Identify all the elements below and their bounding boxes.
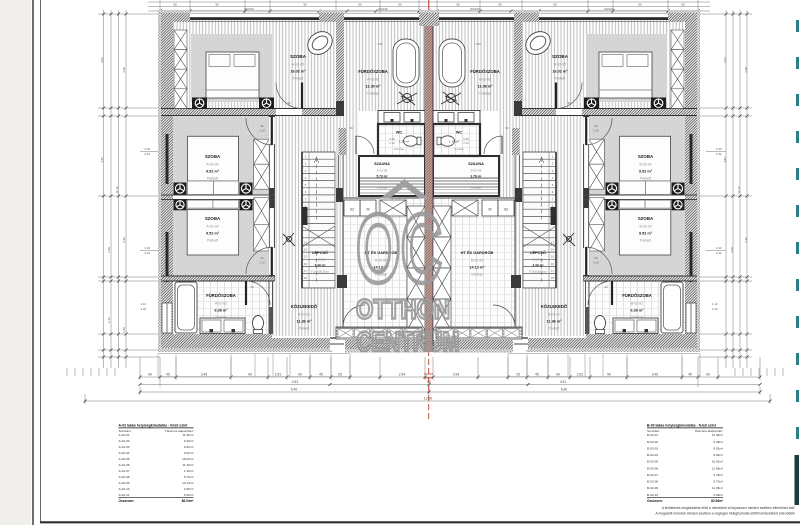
svg-text:1.19 m²: 1.19 m²	[399, 140, 409, 144]
svg-text:B-02-03: B-02-03	[647, 446, 658, 450]
svg-text:SZOBA: SZOBA	[638, 154, 654, 159]
svg-text:11.30 m²: 11.30 m²	[366, 85, 382, 89]
svg-text:11.36m²: 11.36m²	[712, 433, 723, 437]
svg-text:A-02-04: A-02-04	[206, 163, 218, 167]
svg-text:A-02-01: A-02-01	[119, 433, 130, 437]
svg-text:B-02-05: B-02-05	[554, 63, 566, 67]
svg-text:1.19m²: 1.19m²	[184, 469, 194, 473]
svg-text:11.08m²: 11.08m²	[712, 466, 723, 470]
svg-text:90/240: 90/240	[244, 7, 254, 11]
svg-text:90: 90	[505, 126, 509, 130]
svg-text:1.19 m²: 1.19 m²	[449, 140, 459, 144]
svg-text:90/240: 90/240	[604, 7, 614, 11]
svg-text:Greslap: Greslap	[394, 147, 404, 151]
svg-text:90: 90	[604, 285, 608, 289]
svg-text:A-02-01: A-02-01	[298, 313, 310, 317]
svg-text:Parkett: Parkett	[299, 327, 310, 331]
svg-text:B-02-01: B-02-01	[647, 433, 658, 437]
svg-text:90: 90	[298, 373, 302, 377]
svg-text:Parkett: Parkett	[293, 77, 304, 81]
svg-text:Parkett: Parkett	[640, 239, 651, 243]
svg-text:1.56: 1.56	[122, 327, 126, 333]
svg-text:2.40: 2.40	[716, 246, 722, 250]
svg-text:90: 90	[287, 101, 291, 105]
svg-text:A-02-05: A-02-05	[119, 457, 130, 461]
svg-text:B-02-10: B-02-10	[647, 493, 658, 497]
svg-text:3.34 m²: 3.34 m²	[533, 264, 544, 268]
svg-text:WC: WC	[456, 131, 463, 135]
svg-text:Greslap: Greslap	[454, 147, 464, 151]
svg-text:90: 90	[148, 373, 152, 377]
svg-text:A-02-06: A-02-06	[367, 78, 379, 82]
svg-text:Greslap: Greslap	[479, 92, 491, 96]
svg-text:Greslap: Greslap	[631, 316, 643, 320]
svg-text:25: 25	[338, 373, 342, 377]
svg-text:90: 90	[498, 3, 502, 7]
svg-text:3.46: 3.46	[201, 373, 208, 377]
svg-text:45: 45	[688, 373, 692, 377]
svg-text:11.08 m²: 11.08 m²	[478, 85, 494, 89]
svg-text:4.51: 4.51	[292, 380, 299, 384]
svg-text:6.39m²: 6.39m²	[184, 439, 194, 443]
svg-text:Parkett: Parkett	[640, 177, 651, 181]
svg-text:B-02-07: B-02-07	[647, 473, 658, 477]
svg-text:90: 90	[681, 3, 685, 7]
svg-text:Greslap: Greslap	[377, 186, 388, 190]
svg-text:1.62: 1.62	[377, 42, 383, 46]
svg-text:2.10: 2.10	[593, 129, 599, 133]
svg-text:Parkett: Parkett	[207, 239, 218, 243]
svg-text:B-02-06: B-02-06	[647, 466, 658, 470]
svg-text:A-02-11: A-02-11	[119, 493, 130, 497]
svg-text:9.52 m²: 9.52 m²	[206, 232, 220, 236]
svg-text:90/240: 90/240	[470, 7, 480, 11]
svg-text:16.02 m²: 16.02 m²	[290, 70, 306, 74]
svg-text:2.40: 2.40	[141, 307, 147, 311]
svg-text:3.34 m²: 3.34 m²	[315, 264, 326, 268]
svg-text:B-02-06: B-02-06	[479, 78, 491, 82]
svg-text:5.73 m²: 5.73 m²	[377, 175, 388, 179]
svg-text:SZOBA: SZOBA	[638, 216, 654, 221]
svg-text:2.10: 2.10	[389, 141, 395, 145]
svg-text:12.90: 12.90	[424, 397, 432, 401]
svg-text:90: 90	[567, 101, 571, 105]
svg-text:14.13 m²: 14.13 m²	[469, 266, 485, 270]
svg-text:Parkett: Parkett	[555, 77, 566, 81]
svg-text:SZOBA: SZOBA	[290, 54, 307, 59]
svg-text:9.52m²: 9.52m²	[184, 451, 194, 455]
svg-text:B-02-10: B-02-10	[533, 258, 544, 262]
svg-text:11.36m²: 11.36m²	[712, 486, 723, 490]
svg-text:B-02-08: B-02-08	[647, 480, 658, 484]
svg-text:A-02-08: A-02-08	[377, 169, 388, 173]
svg-text:11.36m²: 11.36m²	[182, 433, 193, 437]
svg-text:SZOBA: SZOBA	[205, 216, 221, 221]
svg-text:HT ÉS GARDRÓB: HT ÉS GARDRÓB	[461, 250, 494, 255]
svg-text:3.76 m²: 3.76 m²	[471, 175, 482, 179]
svg-text:KÖZLEKEDŐ: KÖZLEKEDŐ	[541, 304, 568, 309]
svg-text:2.54: 2.54	[453, 373, 460, 377]
svg-text:11.32: 11.32	[737, 186, 741, 194]
svg-text:5.73m²: 5.73m²	[713, 480, 723, 484]
svg-text:2.54: 2.54	[399, 373, 406, 377]
svg-text:Összesen:: Összesen:	[119, 498, 135, 503]
svg-text:2.40: 2.40	[716, 147, 722, 151]
svg-text:A-02-09: A-02-09	[119, 481, 130, 485]
svg-text:2.40: 2.40	[712, 307, 718, 311]
svg-text:A-02-06: A-02-06	[119, 463, 130, 467]
svg-text:WC: WC	[396, 131, 403, 135]
svg-text:90: 90	[594, 124, 598, 128]
svg-text:5.06m²: 5.06m²	[184, 493, 194, 497]
svg-text:B-02-05: B-02-05	[647, 460, 658, 464]
svg-text:2.40: 2.40	[145, 147, 151, 151]
svg-text:FÜRDŐSZOBA: FÜRDŐSZOBA	[622, 293, 652, 298]
svg-text:16.02 m²: 16.02 m²	[552, 70, 568, 74]
svg-text:90: 90	[260, 124, 264, 128]
svg-text:90: 90	[250, 285, 254, 289]
svg-text:90: 90	[215, 3, 219, 7]
svg-text:6.39 m²: 6.39 m²	[214, 309, 228, 313]
svg-text:A-02-04: A-02-04	[119, 451, 130, 455]
svg-text:A megadott méretek minden eset: A megadott méretek minden esetben a végl…	[655, 512, 795, 516]
svg-text:6.39 m²: 6.39 m²	[630, 309, 644, 313]
svg-text:4.83: 4.83	[723, 157, 727, 163]
svg-text:Greslap: Greslap	[471, 186, 482, 190]
svg-text:A-02 lakás helyiségkimutatás -: A-02 lakás helyiségkimutatás - felső szi…	[119, 424, 189, 428]
svg-text:2.10: 2.10	[259, 261, 265, 265]
svg-text:45: 45	[535, 373, 539, 377]
svg-text:B-02 lakás helyiségkimutatás -: B-02 lakás helyiségkimutatás - felső szi…	[647, 424, 717, 428]
svg-text:Greslap: Greslap	[471, 273, 483, 277]
svg-text:B-02-04: B-02-04	[647, 453, 658, 457]
svg-text:9.52m²: 9.52m²	[184, 445, 194, 449]
svg-text:45: 45	[319, 373, 323, 377]
svg-text:A kivitelezés megkezdése előtt: A kivitelezés megkezdése előtt a méretek…	[662, 506, 795, 510]
svg-text:6.40: 6.40	[291, 388, 298, 392]
svg-text:Parkett: Parkett	[549, 327, 560, 331]
svg-text:3.76m²: 3.76m²	[713, 473, 723, 477]
svg-text:3.02: 3.02	[723, 57, 727, 63]
svg-text:2.96: 2.96	[744, 237, 748, 243]
svg-text:B-02-03: B-02-03	[639, 225, 651, 229]
svg-text:9.52m²: 9.52m²	[713, 453, 723, 457]
svg-text:A-02-03: A-02-03	[119, 445, 130, 449]
svg-text:90: 90	[638, 3, 642, 7]
svg-text:90: 90	[398, 3, 402, 7]
svg-text:3.02: 3.02	[100, 57, 104, 63]
svg-text:A-02-07: A-02-07	[119, 469, 130, 473]
svg-text:25: 25	[516, 373, 520, 377]
svg-text:90: 90	[553, 3, 557, 7]
svg-text:FÜRDŐSZOBA: FÜRDŐSZOBA	[358, 69, 388, 74]
svg-text:LÉPCSŐ: LÉPCSŐ	[530, 250, 546, 255]
svg-text:2.42: 2.42	[716, 152, 722, 156]
svg-text:9.52 m²: 9.52 m²	[639, 170, 653, 174]
svg-text:B-02-08: B-02-08	[471, 169, 482, 173]
svg-text:Greslap: Greslap	[367, 92, 379, 96]
svg-text:A-02-08: A-02-08	[119, 475, 130, 479]
svg-text:2.10: 2.10	[259, 129, 265, 133]
svg-text:OC: OC	[356, 194, 442, 303]
svg-text:2.42: 2.42	[145, 152, 151, 156]
svg-text:F:16x18/25cm: F:16x18/25cm	[529, 270, 547, 274]
svg-text:4.83: 4.83	[100, 157, 104, 163]
svg-text:2.66m²: 2.66m²	[713, 493, 723, 497]
svg-text:3.46: 3.46	[652, 373, 659, 377]
svg-text:82.98m²: 82.98m²	[711, 499, 723, 503]
svg-text:SZ: SZ	[350, 208, 354, 212]
svg-text:Összesen:: Összesen:	[647, 498, 663, 503]
svg-text:11.36 m²: 11.36 m²	[297, 320, 313, 324]
svg-text:A-02-02: A-02-02	[215, 302, 227, 306]
svg-text:6.60: 6.60	[107, 247, 111, 253]
svg-text:6.40: 6.40	[561, 388, 568, 392]
svg-text:6.39m²: 6.39m²	[713, 440, 723, 444]
svg-text:90: 90	[556, 373, 560, 377]
svg-text:2.10: 2.10	[463, 141, 469, 145]
svg-text:2.42: 2.42	[716, 251, 722, 255]
svg-text:F:16x18/25cm: F:16x18/25cm	[311, 270, 329, 274]
svg-text:1.12: 1.12	[141, 302, 147, 306]
svg-text:88.04m²: 88.04m²	[182, 499, 194, 503]
svg-text:SZ: SZ	[504, 208, 508, 212]
svg-text:90/240: 90/240	[378, 7, 388, 11]
svg-text:14.13m²: 14.13m²	[182, 481, 193, 485]
svg-text:9.52 m²: 9.52 m²	[639, 232, 653, 236]
svg-text:KÖZLEKEDŐ: KÖZLEKEDŐ	[291, 304, 318, 309]
svg-text:16.02m²: 16.02m²	[712, 460, 723, 464]
svg-text:90: 90	[706, 373, 710, 377]
svg-text:5.73m²: 5.73m²	[184, 475, 194, 479]
svg-text:LÉPCSŐ: LÉPCSŐ	[312, 250, 328, 255]
svg-text:45: 45	[166, 373, 170, 377]
svg-text:2.12: 2.12	[107, 317, 111, 323]
svg-text:90: 90	[248, 373, 252, 377]
svg-text:11.32: 11.32	[115, 186, 119, 194]
svg-text:A-02-10: A-02-10	[315, 258, 326, 262]
svg-text:A-02-03: A-02-03	[206, 225, 218, 229]
svg-text:2.10: 2.10	[593, 261, 599, 265]
svg-text:90: 90	[607, 373, 611, 377]
svg-text:1.12: 1.12	[712, 302, 718, 306]
svg-text:SZOBA: SZOBA	[552, 54, 569, 59]
svg-text:M: M	[489, 208, 492, 212]
svg-text:90: 90	[303, 3, 307, 7]
svg-text:90: 90	[260, 256, 264, 260]
svg-text:90: 90	[594, 256, 598, 260]
svg-text:4.51: 4.51	[560, 380, 567, 384]
svg-text:16.02m²: 16.02m²	[182, 457, 193, 461]
svg-text:SZAUNA: SZAUNA	[374, 162, 390, 166]
svg-text:90: 90	[358, 3, 362, 7]
svg-text:1.62: 1.62	[475, 42, 481, 46]
svg-text:4.45: 4.45	[744, 67, 748, 73]
svg-text:90: 90	[173, 3, 177, 7]
svg-text:SZOBA: SZOBA	[205, 154, 221, 159]
svg-text:9.52m²: 9.52m²	[713, 446, 723, 450]
svg-text:FÜRDŐSZOBA: FÜRDŐSZOBA	[470, 69, 500, 74]
svg-text:2.81: 2.81	[577, 373, 584, 377]
svg-text:B-02-02: B-02-02	[647, 440, 658, 444]
svg-text:A-02-05: A-02-05	[292, 63, 304, 67]
svg-text:B-02-09: B-02-09	[471, 259, 483, 263]
svg-text:B-02-04: B-02-04	[639, 163, 651, 167]
svg-text:B-02-01: B-02-01	[548, 313, 560, 317]
svg-text:11.30m²: 11.30m²	[182, 463, 193, 467]
svg-text:A-02-10: A-02-10	[119, 487, 130, 491]
svg-text:11.36 m²: 11.36 m²	[547, 320, 563, 324]
svg-text:Greslap: Greslap	[215, 316, 227, 320]
svg-text:2.40: 2.40	[145, 246, 151, 250]
svg-text:2.42: 2.42	[145, 251, 151, 255]
svg-text:90: 90	[349, 126, 353, 130]
svg-text:B-02-09: B-02-09	[647, 486, 658, 490]
svg-text:2.96: 2.96	[122, 237, 126, 243]
svg-text:CENTRUM: CENTRUM	[357, 326, 460, 357]
svg-text:SZAUNA: SZAUNA	[468, 162, 484, 166]
svg-text:A-02-02: A-02-02	[119, 439, 130, 443]
svg-text:Parkett: Parkett	[207, 177, 218, 181]
svg-text:2.66m²: 2.66m²	[184, 487, 194, 491]
svg-text:B-02-02: B-02-02	[631, 302, 643, 306]
svg-text:2.81: 2.81	[275, 373, 282, 377]
svg-text:FÜRDŐSZOBA: FÜRDŐSZOBA	[206, 293, 236, 298]
svg-text:OTTHON: OTTHON	[356, 294, 450, 325]
svg-text:4.45: 4.45	[122, 67, 126, 73]
svg-text:9.52 m²: 9.52 m²	[206, 170, 220, 174]
svg-text:90: 90	[456, 3, 460, 7]
svg-text:6.60: 6.60	[730, 247, 734, 253]
